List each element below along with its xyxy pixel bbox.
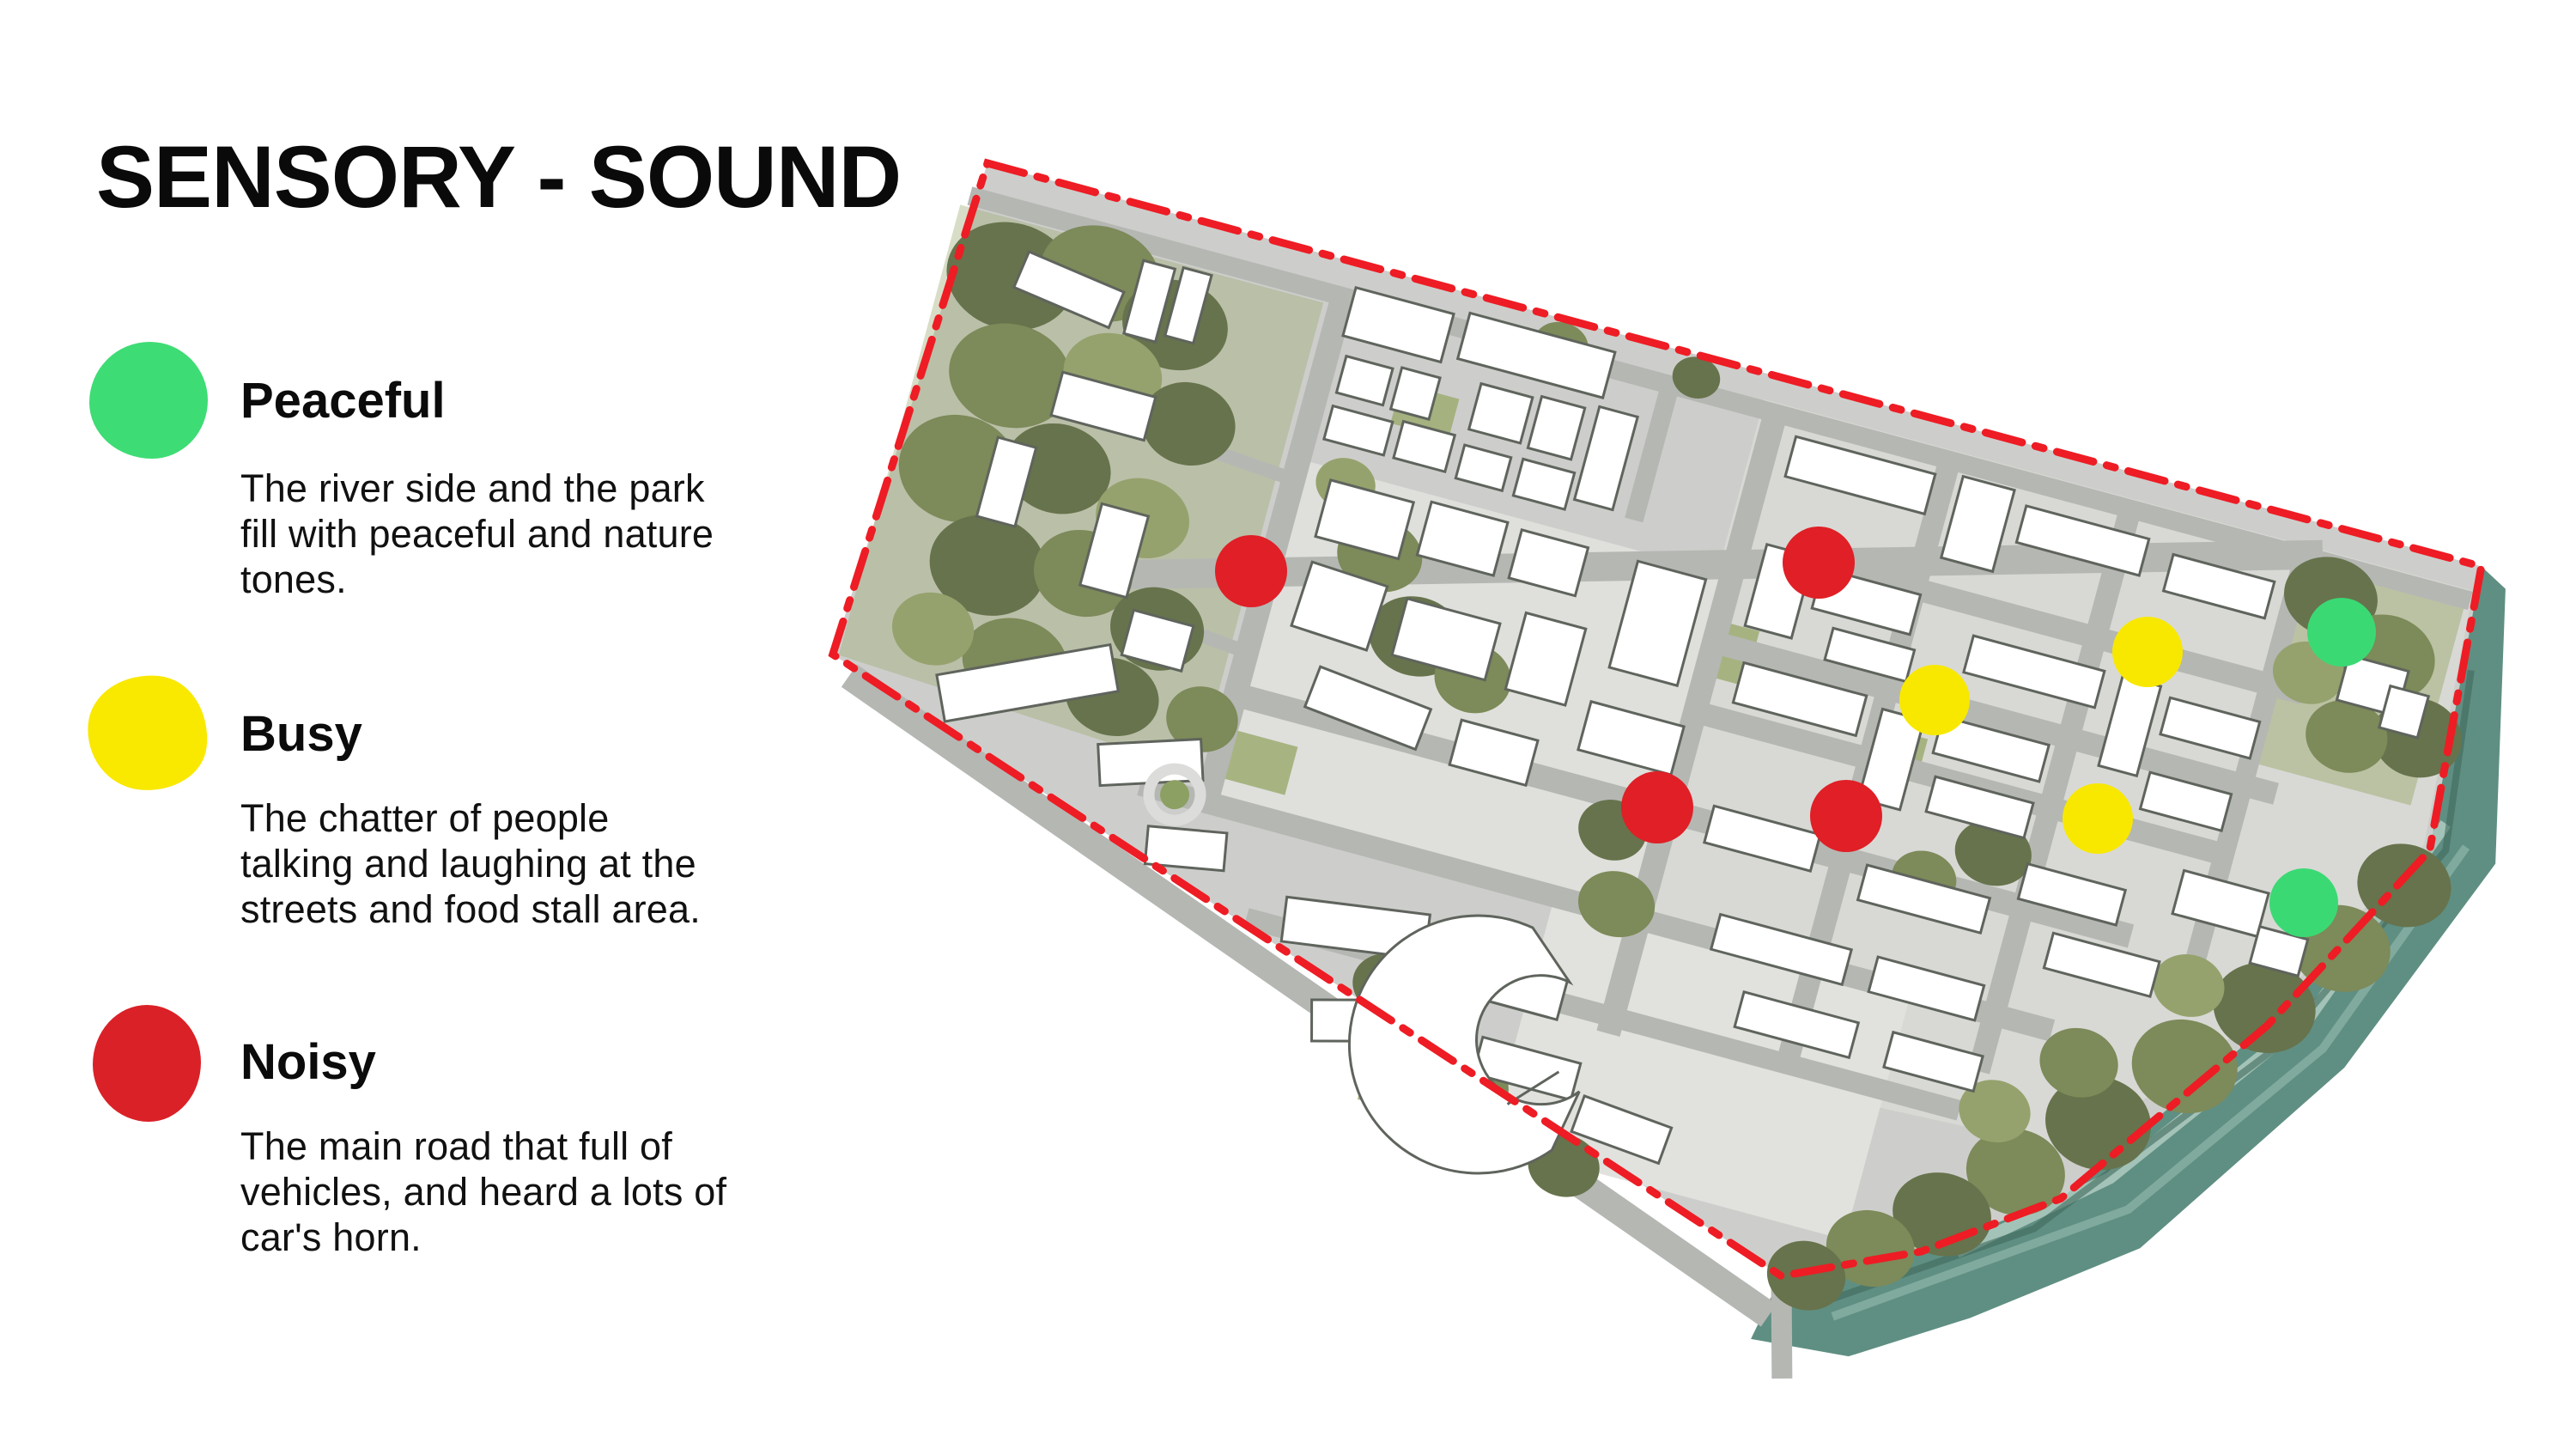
sound-marker-busy <box>2112 617 2183 687</box>
site-map <box>0 0 2576 1449</box>
sound-marker-noisy <box>1810 780 1882 852</box>
roundabout <box>1143 763 1206 826</box>
site-map-svg <box>0 0 2576 1449</box>
sound-marker-busy <box>1899 665 1970 735</box>
sound-marker-peaceful <box>2269 868 2338 937</box>
sound-marker-noisy <box>1215 535 1287 607</box>
sound-marker-noisy <box>1783 527 1855 599</box>
sound-marker-noisy <box>1621 771 1693 843</box>
slide: SENSORY - SOUND Peaceful The river side … <box>0 0 2576 1449</box>
sound-marker-busy <box>2063 783 2133 854</box>
sound-marker-peaceful <box>2307 598 2376 667</box>
